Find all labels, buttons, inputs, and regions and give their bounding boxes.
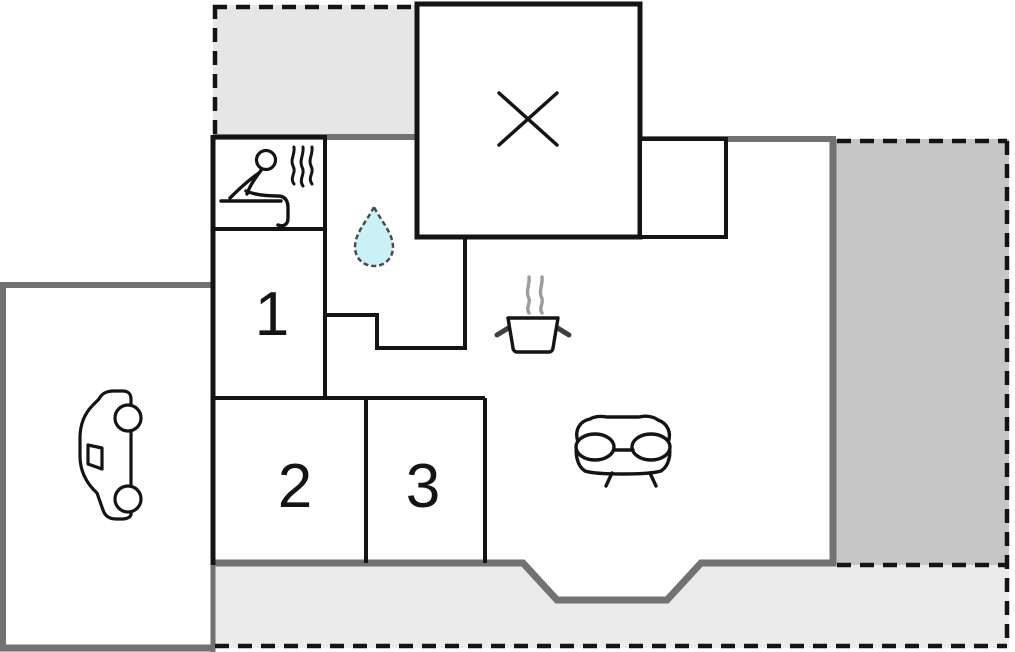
room-label-3: 3	[406, 456, 440, 518]
room-label-2: 2	[278, 456, 312, 518]
floor-plan-drawing	[0, 0, 1015, 652]
floor-plan: 1 2 3	[0, 0, 1015, 652]
terrace-right	[833, 139, 1009, 565]
room-label-1: 1	[255, 284, 289, 346]
terrace-top-left	[213, 5, 417, 137]
annex-room	[640, 139, 726, 237]
